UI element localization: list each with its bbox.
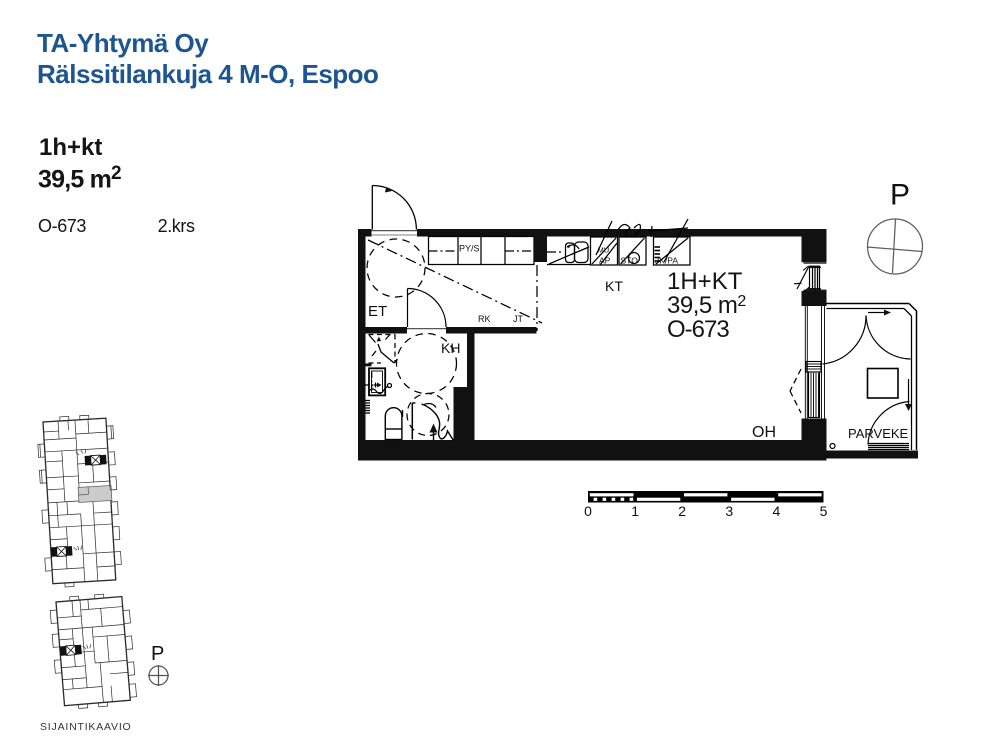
svg-text:ET: ET xyxy=(368,303,387,320)
svg-text:PY/S: PY/S xyxy=(459,244,480,254)
svg-text:RK: RK xyxy=(478,314,491,324)
svg-text:SIJAINTIKAAVIO: SIJAINTIKAAVIO xyxy=(40,721,132,733)
svg-text:JK/PA: JK/PA xyxy=(655,256,678,266)
svg-text:STO: STO xyxy=(621,256,639,266)
svg-text:1H+KT: 1H+KT xyxy=(667,268,743,295)
svg-text:2: 2 xyxy=(678,503,686,519)
svg-text:KT: KT xyxy=(605,278,623,294)
svg-text:1: 1 xyxy=(631,503,639,519)
svg-text:JT: JT xyxy=(513,314,524,324)
svg-text:5: 5 xyxy=(820,503,828,519)
svg-text:0: 0 xyxy=(584,503,592,519)
svg-text:3: 3 xyxy=(725,503,733,519)
svg-text:4: 4 xyxy=(773,503,781,519)
svg-text:OH: OH xyxy=(752,424,776,441)
svg-text:P: P xyxy=(890,179,910,212)
svg-text:PARVEKE: PARVEKE xyxy=(848,426,909,441)
svg-text:39,5 m2: 39,5 m2 xyxy=(667,292,746,319)
svg-text:P: P xyxy=(151,643,164,665)
svg-text:AP: AP xyxy=(599,256,611,266)
svg-text:MU: MU xyxy=(598,246,610,255)
svg-text:O-673: O-673 xyxy=(667,316,729,343)
svg-text:KH: KH xyxy=(441,340,460,356)
